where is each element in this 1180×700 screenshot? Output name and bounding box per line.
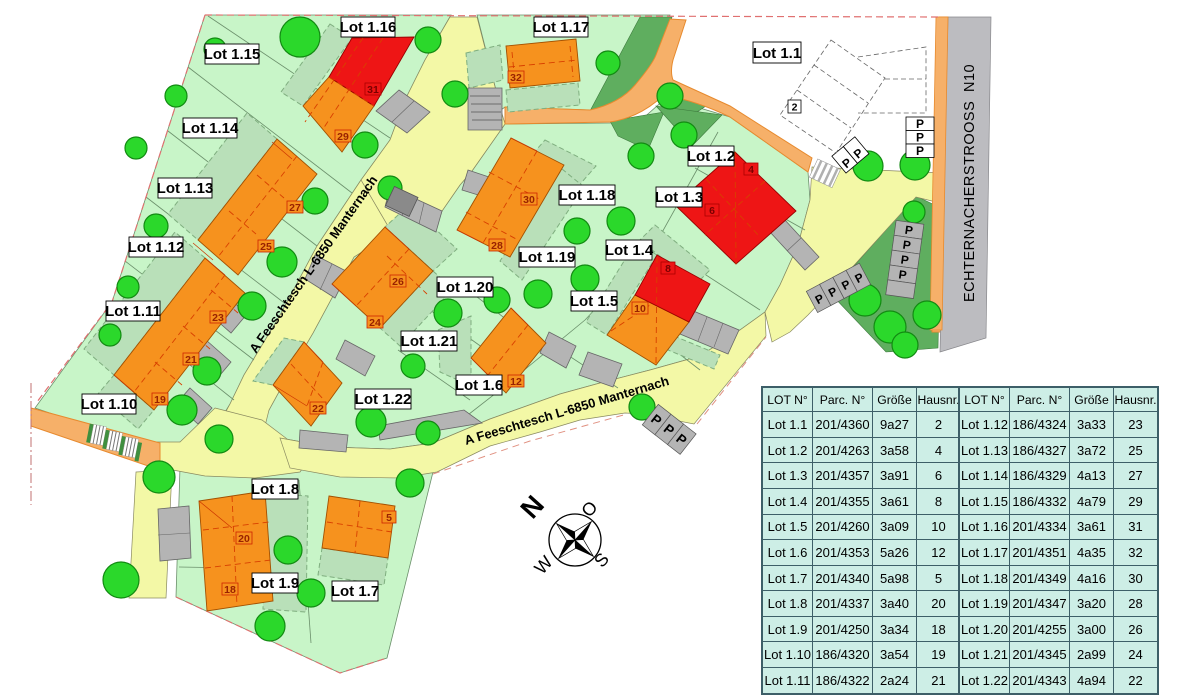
svg-text:31: 31 (367, 84, 379, 96)
svg-text:Lot 1.14: Lot 1.14 (182, 120, 239, 137)
svg-text:P: P (916, 144, 924, 158)
svg-text:28: 28 (491, 240, 503, 252)
svg-text:32: 32 (510, 72, 522, 84)
svg-text:ECHTERNACHERSTROOSS: ECHTERNACHERSTROOSS (962, 101, 978, 302)
svg-text:Lot 1.13: Lot 1.13 (157, 180, 214, 197)
svg-text:19: 19 (154, 394, 166, 406)
svg-text:Lot 1.5: Lot 1.5 (570, 293, 618, 310)
svg-text:S: S (590, 549, 613, 571)
svg-text:Lot 1.12: Lot 1.12 (128, 239, 185, 256)
svg-text:Lot 1.10: Lot 1.10 (81, 396, 138, 413)
svg-text:12: 12 (510, 376, 522, 388)
svg-text:26: 26 (392, 276, 404, 288)
svg-text:21: 21 (185, 354, 197, 366)
svg-text:20: 20 (238, 533, 250, 545)
svg-text:P: P (916, 131, 924, 145)
svg-text:10: 10 (634, 303, 646, 315)
svg-text:Lot 1.8: Lot 1.8 (251, 481, 299, 498)
svg-text:Lot 1.2: Lot 1.2 (687, 148, 735, 165)
svg-text:Lot 1.4: Lot 1.4 (605, 242, 654, 259)
svg-text:29: 29 (337, 131, 349, 143)
svg-text:Lot 1.15: Lot 1.15 (204, 46, 261, 63)
svg-text:Lot 1.21: Lot 1.21 (401, 333, 458, 350)
svg-text:Lot 1.19: Lot 1.19 (519, 249, 576, 266)
svg-text:Lot 1.6: Lot 1.6 (455, 377, 503, 394)
svg-text:25: 25 (260, 241, 272, 253)
svg-text:24: 24 (369, 317, 381, 329)
svg-text:Lot 1.7: Lot 1.7 (331, 583, 379, 600)
svg-text:27: 27 (289, 202, 301, 214)
svg-text:N: N (515, 490, 550, 525)
svg-text:2: 2 (792, 102, 798, 114)
svg-text:Lot 1.1: Lot 1.1 (753, 45, 801, 62)
svg-text:P: P (916, 117, 924, 131)
svg-text:W: W (530, 552, 556, 578)
svg-text:5: 5 (386, 512, 392, 524)
svg-text:Lot 1.17: Lot 1.17 (533, 19, 590, 36)
svg-text:22: 22 (312, 403, 324, 415)
svg-text:4: 4 (748, 164, 754, 176)
svg-text:O: O (577, 497, 601, 521)
svg-text:Lot 1.9: Lot 1.9 (251, 575, 299, 592)
svg-text:18: 18 (224, 584, 236, 596)
svg-text:8: 8 (665, 263, 671, 275)
svg-text:Lot 1.22: Lot 1.22 (355, 391, 412, 408)
svg-text:Lot 1.11: Lot 1.11 (105, 303, 161, 320)
svg-text:Lot 1.18: Lot 1.18 (559, 187, 616, 204)
svg-text:Lot 1.20: Lot 1.20 (437, 279, 494, 296)
svg-text:30: 30 (523, 194, 535, 206)
svg-text:6: 6 (709, 205, 715, 217)
svg-text:N10: N10 (962, 64, 978, 92)
svg-text:23: 23 (212, 312, 224, 324)
svg-text:Lot 1.16: Lot 1.16 (340, 19, 397, 36)
svg-text:Lot 1.3: Lot 1.3 (655, 189, 703, 206)
